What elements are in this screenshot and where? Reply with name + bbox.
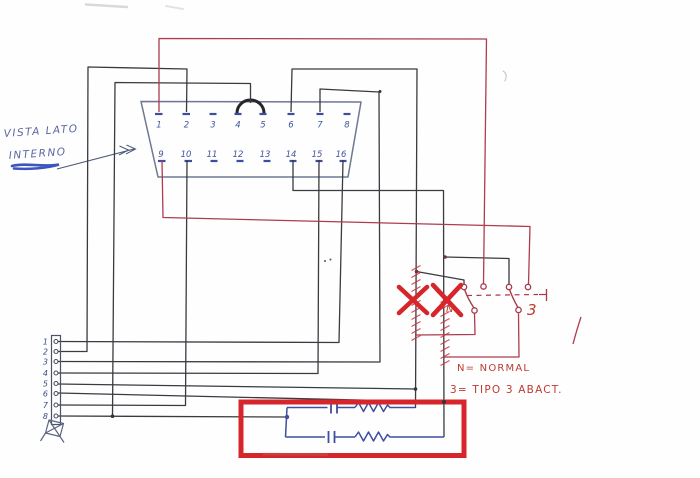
diagram-canvas: VISTA LATO INTERNO 1 2 3 4 5 6 7 8 — [0, 0, 700, 478]
connector-16pin: 1 2 3 4 5 6 7 8 9 10 11 12 13 14 15 16 — [141, 100, 361, 177]
pin-label-7: 7 — [317, 121, 323, 131]
pin-label-9: 9 — [158, 150, 163, 160]
highlight-rectangle — [241, 402, 464, 456]
wire-pin9-switch4 — [162, 160, 530, 284]
black-wires — [58, 67, 509, 437]
pin-label-5: 5 — [260, 121, 265, 131]
legend-line2: 3= TIPO 3 ABACT. — [450, 384, 563, 396]
wire-pin7-terminal3 — [58, 89, 380, 362]
terminal-label-2: 2 — [43, 348, 48, 357]
wire-terminal8-rc — [58, 416, 287, 417]
legend-line1: N= NORMAL — [457, 363, 530, 374]
terminal-label-4: 4 — [43, 369, 48, 378]
wire-jumper45-row8 — [113, 83, 251, 417]
pin-label-12: 12 — [233, 150, 244, 160]
note-underline — [12, 165, 59, 169]
terminal-strip-body — [52, 336, 61, 425]
rc-branch-bottom — [286, 431, 445, 443]
terminal-label-6: 6 — [43, 390, 48, 399]
red-wires — [159, 39, 581, 358]
wire-pin2-terminal2 — [58, 67, 187, 352]
wire-pin14-trunkB — [293, 160, 444, 437]
pin-label-13: 13 — [260, 150, 271, 160]
junction-trunkB-branch — [443, 255, 447, 259]
note-vista-lato-interno: VISTA LATO INTERNO — [3, 123, 135, 169]
note-line1: VISTA LATO — [3, 123, 79, 140]
terminal-strip: 1 2 3 4 5 6 7 8 — [41, 336, 65, 443]
pointer-arrow — [57, 145, 136, 169]
pin-label-3: 3 — [210, 121, 215, 131]
terminal-label-3: 3 — [43, 358, 48, 367]
red-flick-mark — [573, 317, 581, 344]
junction-trunkA-branch — [415, 270, 419, 274]
terminal-label-8: 8 — [43, 412, 48, 421]
legend: N= NORMAL 3= TIPO 3 ABACT. — [450, 363, 563, 396]
rc-left-link — [286, 408, 288, 438]
switch2-lever — [510, 290, 519, 308]
connector-outline — [141, 102, 361, 178]
bottom-pin-numbers: 9 10 11 12 13 14 15 16 — [158, 150, 347, 160]
wire-switch1-pole-trunkA — [416, 314, 475, 336]
switch-n-label: N — [446, 304, 455, 315]
wire-pin1-switch2 — [159, 39, 487, 284]
junction-dots — [111, 90, 446, 418]
wire-pin6-trunkA — [291, 69, 417, 408]
terminal-label-1: 1 — [43, 338, 48, 347]
scanned-wiring-diagram: VISTA LATO INTERNO 1 2 3 4 5 6 7 8 — [0, 0, 700, 478]
pin-label-16: 16 — [336, 150, 347, 160]
pin-label-15: 15 — [312, 150, 323, 160]
terminal-contacts — [54, 340, 58, 419]
rc-snubber-network — [285, 402, 444, 443]
pin-label-8: 8 — [344, 121, 350, 131]
wire-terminal5-trunkA — [58, 384, 416, 389]
terminal-numbers: 1 2 3 4 5 6 7 8 — [43, 338, 49, 422]
top-pin-numbers: 1 2 3 4 5 6 7 8 — [156, 121, 350, 131]
switch-contacts — [461, 284, 530, 313]
branch-trunkB-switch3 — [445, 257, 509, 284]
pin-label-10: 10 — [181, 150, 192, 160]
pin-label-4: 4 — [235, 121, 240, 131]
terminal-label-5: 5 — [43, 380, 48, 389]
resistor-bottom — [355, 432, 391, 441]
terminal-label-7: 7 — [43, 401, 49, 410]
pin-label-6: 6 — [288, 121, 294, 131]
pin-label-2: 2 — [184, 121, 189, 131]
switch-3-label: 3 — [527, 301, 538, 319]
pin-label-11: 11 — [207, 150, 218, 160]
gang-link-dashed — [467, 295, 538, 296]
switch1-lever — [465, 290, 475, 309]
chassis-symbol — [41, 420, 65, 443]
marker-smear — [263, 454, 328, 455]
rc-input-node — [285, 415, 289, 419]
pin-label-1: 1 — [156, 121, 161, 131]
branch-trunkA-switch1 — [417, 272, 465, 285]
wire-pin16-terminal1 — [58, 160, 343, 343]
pin-label-14: 14 — [286, 150, 297, 160]
wire-pin10-terminal7 — [58, 160, 187, 406]
note-line2: INTERNO — [8, 146, 67, 162]
